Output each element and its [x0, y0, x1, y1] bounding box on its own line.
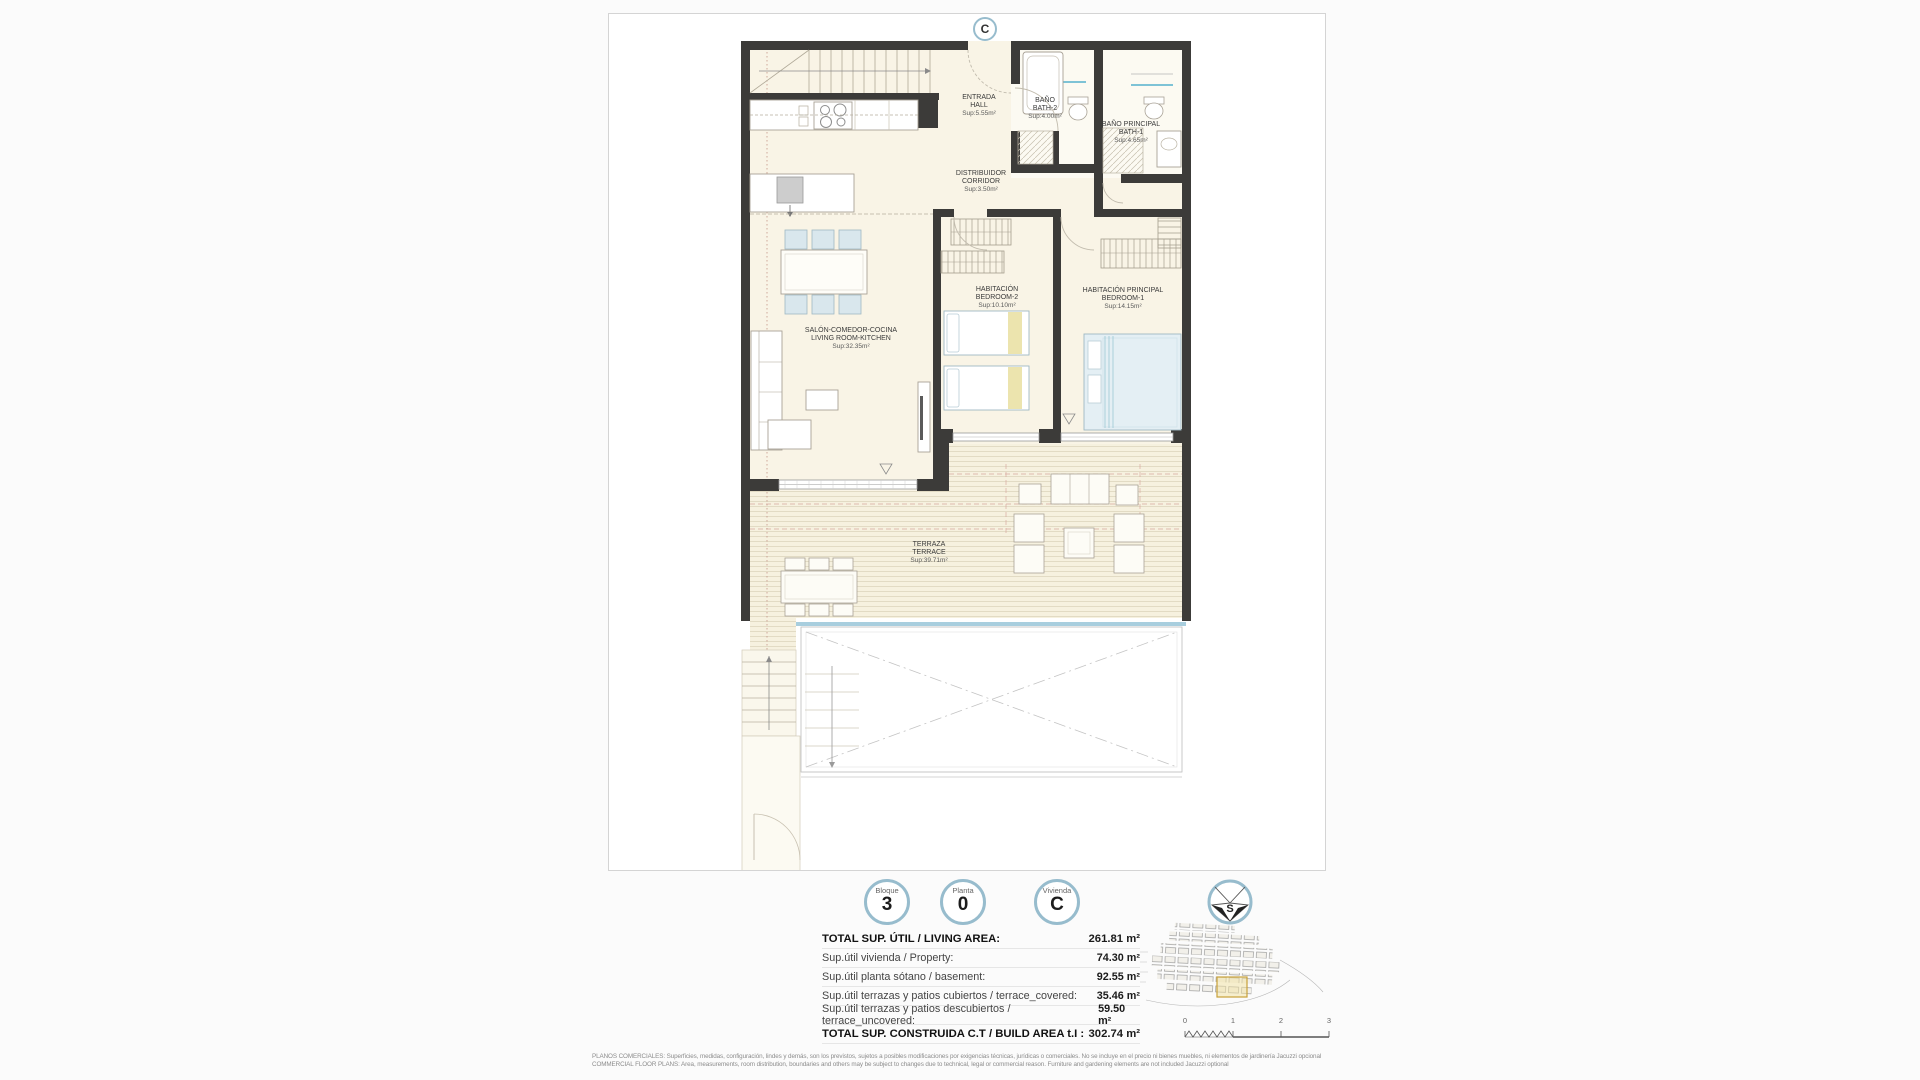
scale-tick: 3 — [1324, 1016, 1334, 1025]
unit-highlight — [1217, 977, 1247, 997]
disclaimer-line-es: PLANOS COMERCIALES: Superficies, medidas… — [592, 1053, 1336, 1061]
room-label-bedroom2: HABITACIÓN BEDROOM-2 Sup:10.10m² — [937, 286, 1057, 310]
disclaimer-line-en: COMMERCIAL FLOOR PLANS: Area, measuremen… — [592, 1061, 1336, 1069]
room-label-living: SALÓN-COMEDOR-COCINA LIVING ROOM-KITCHEN… — [791, 327, 911, 351]
badge-floor: Planta 0 — [940, 879, 986, 925]
tv-unit — [918, 382, 930, 452]
scale-tick: 1 — [1228, 1016, 1238, 1025]
compass-rose-icon — [1205, 877, 1255, 927]
badge-floor-value: 0 — [958, 895, 969, 916]
badge-unit: Vivienda C — [1034, 879, 1080, 925]
room-label-corridor: DISTRIBUIDOR CORRIDOR Sup:3.50m² — [921, 170, 1041, 194]
area-table: TOTAL SUP. ÚTIL / LIVING AREA: 261.81 m²… — [822, 930, 1140, 1044]
table-row: Sup.útil vivienda / Property: 74.30 m² — [822, 949, 1140, 968]
floor-plan-drawing — [609, 14, 1325, 870]
table-row: Sup.útil planta sótano / basement: 92.55… — [822, 968, 1140, 987]
compass-south-label: S — [1205, 903, 1255, 915]
badge-unit-value: C — [1050, 895, 1064, 916]
plan-sheet: C ENTRADA HALL Sup:5.55m² BAÑO BATH-2 Su… — [608, 13, 1326, 871]
disclaimer: PLANOS COMERCIALES: Superficies, medidas… — [592, 1053, 1336, 1069]
badge-block-value: 3 — [882, 895, 893, 916]
room-label-bath2: BAÑO BATH-2 Sup:4.00m² — [985, 97, 1105, 121]
lower-stairs — [742, 650, 796, 736]
badge-block: Bloque 3 — [864, 879, 910, 925]
scale-tick: 2 — [1276, 1016, 1286, 1025]
site-aerial-illustration — [1138, 922, 1333, 1018]
unit-letter-badge: C — [973, 17, 997, 41]
unit-letter: C — [981, 22, 990, 36]
table-row: TOTAL SUP. ÚTIL / LIVING AREA: 261.81 m² — [822, 930, 1140, 949]
room-label-bath1: BAÑO PRINCIPAL BATH-1 Sup:4.65m² — [1071, 121, 1191, 145]
scale-tick: 0 — [1180, 1016, 1190, 1025]
table-row: TOTAL SUP. CONSTRUIDA C.T / BUILD AREA t… — [822, 1025, 1140, 1044]
compass: S — [1205, 877, 1255, 927]
terrace-dining-set — [781, 558, 857, 616]
room-label-terrace: TERRAZA TERRACE Sup:39.71m² — [869, 541, 989, 565]
pool — [796, 622, 1186, 777]
room-label-bedroom1: HABITACIÓN PRINCIPAL BEDROOM-1 Sup:14.15… — [1063, 287, 1183, 311]
page-canvas: C ENTRADA HALL Sup:5.55m² BAÑO BATH-2 Su… — [0, 0, 1920, 1080]
vestibule — [742, 736, 800, 870]
bedroom1-bed — [1084, 334, 1181, 430]
table-row: Sup.útil terrazas y patios descubiertos … — [822, 1006, 1140, 1025]
scale-bar — [1183, 1027, 1331, 1039]
dining-set — [781, 230, 867, 314]
kitchen-counter — [750, 100, 918, 130]
